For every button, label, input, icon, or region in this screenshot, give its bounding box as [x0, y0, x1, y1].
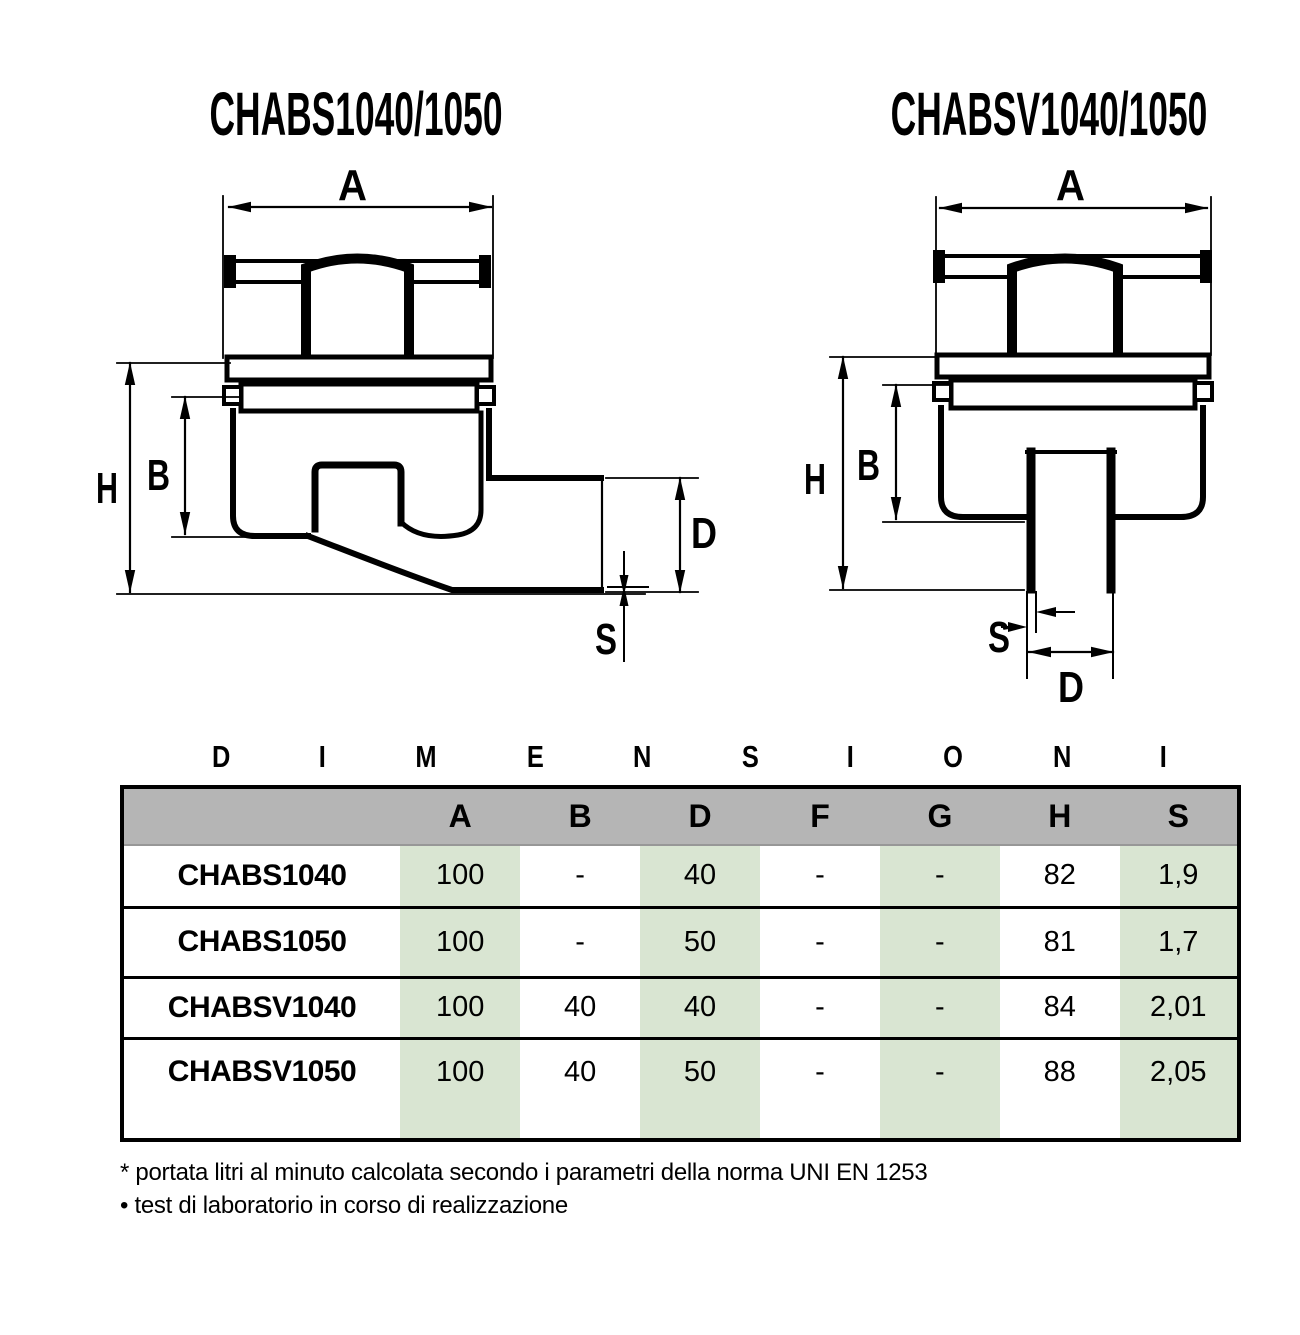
table-cell: 50 — [640, 907, 760, 977]
dimensions-section-title: D I M E N S I O N I — [210, 741, 1168, 772]
table-cell: - — [760, 845, 879, 907]
table-cell: 88 — [1000, 1038, 1119, 1140]
header-cell-product — [122, 787, 400, 845]
table-cell: - — [880, 907, 1000, 977]
table-cell: - — [880, 977, 1000, 1038]
table-cell: 100 — [400, 907, 520, 977]
section-title-letter: N — [633, 741, 651, 772]
product-name: CHABS1050 — [122, 907, 400, 977]
product-name: CHABSV1050 — [122, 1038, 400, 1140]
left-dim-label-d: D — [691, 509, 717, 558]
section-title-letter: N — [1053, 741, 1071, 772]
right-dim-label-h: H — [804, 455, 826, 504]
table-row: CHABS1050 100 - 50 - - 81 1,7 — [122, 907, 1239, 977]
right-grate — [933, 250, 1212, 353]
right-flange — [934, 355, 1212, 408]
header-cell-f: F — [760, 787, 879, 845]
table-cell: - — [760, 907, 879, 977]
product-name: CHABSV1040 — [122, 977, 400, 1038]
table-cell: 100 — [400, 845, 520, 907]
table-cell: - — [520, 907, 639, 977]
left-dim-label-h: H — [96, 464, 118, 513]
header-cell-h: H — [1000, 787, 1119, 845]
left-dim-label-s: S — [595, 615, 617, 664]
table-cell: 50 — [640, 1038, 760, 1140]
dimensions-table: A B D F G H S CHABS1040 100 - 40 - - 82 … — [120, 785, 1241, 1142]
right-dimension-d: D — [1029, 592, 1113, 712]
right-dim-label-s: S — [988, 613, 1010, 662]
table-cell: 40 — [520, 1038, 639, 1140]
left-grate — [224, 255, 491, 354]
left-dim-label-b: B — [147, 451, 170, 500]
section-title-letter: O — [943, 741, 963, 772]
product-name: CHABS1040 — [122, 845, 400, 907]
footnote-line: * portata litri al minuto calcolata seco… — [120, 1156, 927, 1189]
right-dim-label-b: B — [857, 441, 880, 490]
left-flange — [224, 357, 494, 411]
section-title-letter: I — [1160, 741, 1167, 772]
section-title-letter: S — [742, 741, 759, 772]
table-cell: 84 — [1000, 977, 1119, 1038]
section-title-letter: M — [415, 741, 436, 772]
technical-drawings: A H B D — [0, 0, 1300, 735]
left-dim-label-a: A — [338, 161, 367, 210]
table-row: CHABSV1040 100 40 40 - - 84 2,01 — [122, 977, 1239, 1038]
header-cell-s: S — [1120, 787, 1239, 845]
table-cell: 1,7 — [1120, 907, 1239, 977]
left-dimension-b: B — [147, 397, 308, 537]
right-dim-label-d: D — [1058, 663, 1084, 712]
table-cell: - — [760, 977, 879, 1038]
table-cell: 81 — [1000, 907, 1119, 977]
table-cell: - — [520, 845, 639, 907]
table-cell: 40 — [520, 977, 639, 1038]
section-title-letter: D — [212, 741, 230, 772]
header-cell-d: D — [640, 787, 760, 845]
header-cell-g: G — [880, 787, 1000, 845]
table-cell: 82 — [1000, 845, 1119, 907]
table-cell: - — [760, 1038, 879, 1140]
right-body — [941, 408, 1203, 589]
footnote-line: • test di laboratorio in corso di realiz… — [120, 1189, 927, 1222]
left-body — [233, 411, 602, 591]
table-cell: 40 — [640, 845, 760, 907]
table-cell: - — [880, 1038, 1000, 1140]
header-cell-a: A — [400, 787, 520, 845]
section-title-letter: I — [847, 741, 854, 772]
section-title-letter: E — [527, 741, 544, 772]
left-dimension-d: D — [606, 478, 717, 592]
right-drawing: A H B — [804, 161, 1212, 712]
table-cell: 40 — [640, 977, 760, 1038]
footnotes: * portata litri al minuto calcolata seco… — [120, 1156, 927, 1222]
header-cell-b: B — [520, 787, 639, 845]
table-row: CHABSV1050 100 40 50 - - 88 2,05 — [122, 1038, 1239, 1140]
table-header-row: A B D F G H S — [122, 787, 1239, 845]
table-cell: 1,9 — [1120, 845, 1239, 907]
right-dim-label-a: A — [1056, 161, 1085, 210]
datasheet-page: CHABS1040/1050 CHABSV1040/1050 — [0, 0, 1300, 1335]
table-row: CHABS1040 100 - 40 - - 82 1,9 — [122, 845, 1239, 907]
table-cell: 2,01 — [1120, 977, 1239, 1038]
section-title-letter: I — [319, 741, 326, 772]
left-drawing: A H B D — [96, 161, 717, 664]
table-cell: 100 — [400, 1038, 520, 1140]
table-cell: 2,05 — [1120, 1038, 1239, 1140]
table-cell: - — [880, 845, 1000, 907]
table-cell: 100 — [400, 977, 520, 1038]
